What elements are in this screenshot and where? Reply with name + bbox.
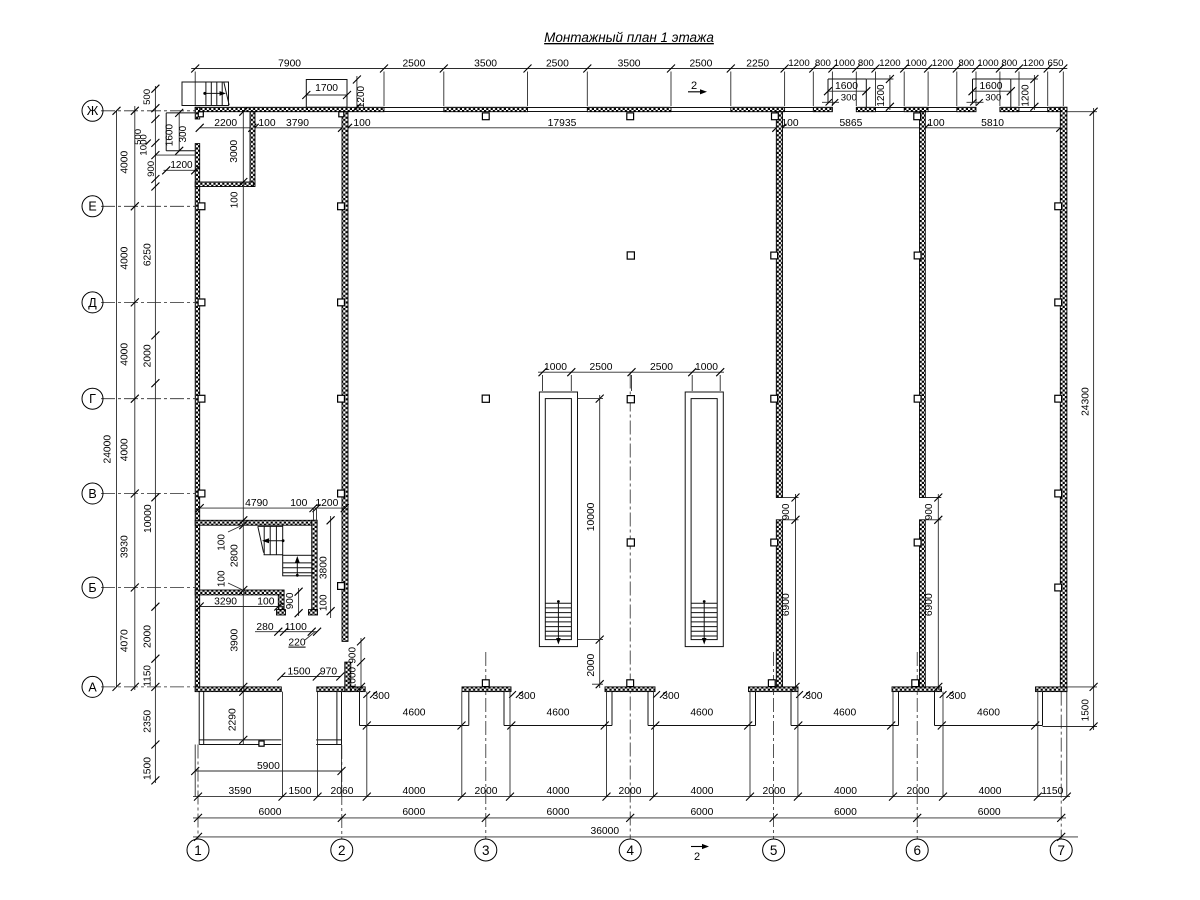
svg-text:Ж: Ж	[87, 104, 99, 118]
svg-text:100: 100	[257, 597, 274, 608]
svg-text:7: 7	[1057, 843, 1065, 858]
svg-text:3290: 3290	[214, 597, 237, 608]
svg-text:2000: 2000	[143, 625, 154, 648]
svg-text:3000: 3000	[229, 140, 240, 163]
svg-text:1500: 1500	[143, 757, 154, 780]
svg-text:300: 300	[518, 691, 535, 702]
svg-text:100: 100	[216, 570, 227, 587]
svg-text:3500: 3500	[474, 58, 497, 69]
svg-text:1150: 1150	[143, 665, 154, 687]
svg-text:2290: 2290	[228, 708, 239, 731]
svg-text:1000: 1000	[906, 58, 927, 69]
svg-text:100: 100	[216, 534, 227, 551]
svg-text:4600: 4600	[977, 708, 1000, 719]
svg-text:900: 900	[348, 647, 359, 664]
svg-text:100: 100	[229, 191, 240, 208]
svg-text:500: 500	[142, 89, 153, 105]
svg-text:1000: 1000	[348, 666, 359, 689]
svg-text:5810: 5810	[981, 118, 1004, 129]
svg-text:3500: 3500	[618, 58, 641, 69]
svg-text:800: 800	[1001, 58, 1017, 69]
svg-text:24000: 24000	[103, 435, 114, 464]
svg-text:1000: 1000	[138, 134, 149, 155]
svg-text:5900: 5900	[257, 761, 280, 772]
svg-text:4600: 4600	[547, 708, 570, 719]
svg-text:6000: 6000	[547, 807, 570, 818]
svg-text:1000: 1000	[544, 362, 567, 373]
svg-text:36000: 36000	[590, 826, 619, 837]
svg-text:5865: 5865	[839, 118, 862, 129]
svg-text:900: 900	[146, 161, 157, 177]
svg-text:2: 2	[338, 843, 346, 858]
svg-text:Г: Г	[89, 392, 96, 406]
svg-text:6250: 6250	[143, 243, 154, 266]
svg-text:6: 6	[913, 843, 921, 858]
svg-text:2800: 2800	[230, 544, 241, 567]
svg-text:300: 300	[985, 93, 1001, 104]
svg-text:800: 800	[858, 58, 874, 69]
svg-text:2000: 2000	[619, 786, 642, 797]
svg-text:3590: 3590	[229, 786, 252, 797]
svg-text:4000: 4000	[120, 343, 131, 366]
svg-text:4000: 4000	[403, 786, 426, 797]
svg-text:4790: 4790	[245, 498, 268, 509]
svg-text:900: 900	[924, 503, 935, 520]
svg-text:А: А	[88, 680, 97, 694]
svg-text:2000: 2000	[143, 344, 154, 367]
svg-text:4000: 4000	[691, 786, 714, 797]
svg-text:2000: 2000	[907, 786, 930, 797]
svg-text:800: 800	[958, 58, 974, 69]
svg-text:300: 300	[662, 691, 679, 702]
svg-text:900: 900	[285, 592, 296, 609]
svg-text:300: 300	[805, 691, 822, 702]
svg-text:2200: 2200	[214, 118, 237, 129]
svg-text:3930: 3930	[120, 535, 131, 558]
svg-text:7900: 7900	[278, 58, 301, 69]
svg-text:1200: 1200	[1021, 84, 1032, 107]
svg-text:4070: 4070	[120, 629, 131, 652]
svg-text:100: 100	[353, 118, 370, 129]
svg-text:2500: 2500	[650, 362, 673, 373]
svg-text:1600: 1600	[980, 81, 1003, 92]
svg-text:900: 900	[781, 503, 792, 520]
svg-text:2000: 2000	[586, 653, 597, 676]
svg-text:2250: 2250	[746, 58, 769, 69]
svg-text:5: 5	[770, 843, 778, 858]
svg-text:4000: 4000	[547, 786, 570, 797]
svg-text:1200: 1200	[876, 84, 887, 107]
svg-text:10000: 10000	[586, 502, 597, 531]
svg-text:6000: 6000	[690, 807, 713, 818]
svg-text:4600: 4600	[690, 708, 713, 719]
svg-text:6900: 6900	[924, 593, 935, 616]
svg-text:6900: 6900	[781, 593, 792, 616]
svg-text:3790: 3790	[286, 118, 309, 129]
svg-text:300: 300	[949, 691, 966, 702]
svg-text:1000: 1000	[977, 58, 998, 69]
svg-text:800: 800	[815, 58, 831, 69]
svg-text:4000: 4000	[979, 786, 1002, 797]
svg-text:Е: Е	[88, 200, 96, 214]
svg-text:6000: 6000	[259, 807, 282, 818]
svg-text:1150: 1150	[1041, 786, 1063, 797]
svg-text:1700: 1700	[315, 83, 338, 94]
svg-text:6000: 6000	[978, 807, 1001, 818]
svg-text:2060: 2060	[331, 786, 354, 797]
svg-text:3: 3	[482, 843, 490, 858]
svg-text:100: 100	[927, 118, 944, 129]
svg-text:6000: 6000	[402, 807, 425, 818]
svg-text:1: 1	[194, 843, 202, 858]
svg-text:1500: 1500	[1081, 699, 1092, 722]
svg-text:2: 2	[691, 80, 697, 92]
svg-text:1200: 1200	[1023, 58, 1044, 69]
svg-text:1200: 1200	[879, 58, 900, 69]
svg-text:100: 100	[318, 594, 329, 611]
svg-text:650: 650	[1047, 58, 1063, 69]
svg-text:24300: 24300	[1081, 387, 1092, 416]
svg-text:100: 100	[258, 118, 275, 129]
svg-text:1000: 1000	[695, 362, 718, 373]
svg-text:300: 300	[373, 691, 390, 702]
svg-text:100: 100	[290, 498, 307, 509]
svg-text:4600: 4600	[403, 708, 426, 719]
svg-text:1000: 1000	[834, 58, 855, 69]
svg-text:1600: 1600	[835, 81, 858, 92]
svg-text:6000: 6000	[834, 807, 857, 818]
svg-text:1200: 1200	[932, 58, 953, 69]
svg-text:1100: 1100	[285, 622, 307, 633]
svg-text:2000: 2000	[763, 786, 786, 797]
svg-text:2000: 2000	[475, 786, 498, 797]
svg-text:Монтажный план 1 этажа: Монтажный план 1 этажа	[544, 30, 714, 45]
svg-text:3900: 3900	[230, 628, 241, 651]
svg-text:970: 970	[320, 666, 337, 677]
svg-text:Б: Б	[88, 581, 96, 595]
svg-text:4000: 4000	[834, 786, 857, 797]
svg-text:300: 300	[178, 125, 189, 142]
svg-text:Д: Д	[88, 296, 97, 310]
svg-text:2500: 2500	[402, 58, 425, 69]
svg-text:10000: 10000	[143, 504, 154, 533]
svg-text:2500: 2500	[590, 362, 613, 373]
svg-text:220: 220	[288, 638, 305, 649]
svg-text:1500: 1500	[288, 666, 311, 677]
svg-text:2: 2	[694, 851, 700, 863]
svg-text:4000: 4000	[120, 246, 131, 269]
svg-text:1200: 1200	[170, 160, 193, 171]
svg-text:2500: 2500	[546, 58, 569, 69]
svg-text:1200: 1200	[315, 498, 338, 509]
svg-text:100: 100	[781, 118, 798, 129]
svg-text:4600: 4600	[833, 708, 856, 719]
svg-text:1600: 1600	[165, 124, 176, 147]
svg-text:1500: 1500	[289, 786, 312, 797]
svg-text:В: В	[88, 487, 96, 501]
svg-text:3800: 3800	[318, 556, 329, 579]
svg-text:4: 4	[626, 843, 634, 858]
svg-text:1200: 1200	[788, 58, 809, 69]
svg-text:17935: 17935	[548, 118, 577, 129]
svg-text:4000: 4000	[120, 438, 131, 461]
svg-text:4000: 4000	[120, 150, 131, 173]
svg-text:2350: 2350	[143, 710, 154, 733]
svg-text:280: 280	[256, 622, 273, 633]
svg-text:1200: 1200	[356, 85, 367, 108]
svg-text:2500: 2500	[689, 58, 712, 69]
svg-text:300: 300	[841, 93, 857, 104]
